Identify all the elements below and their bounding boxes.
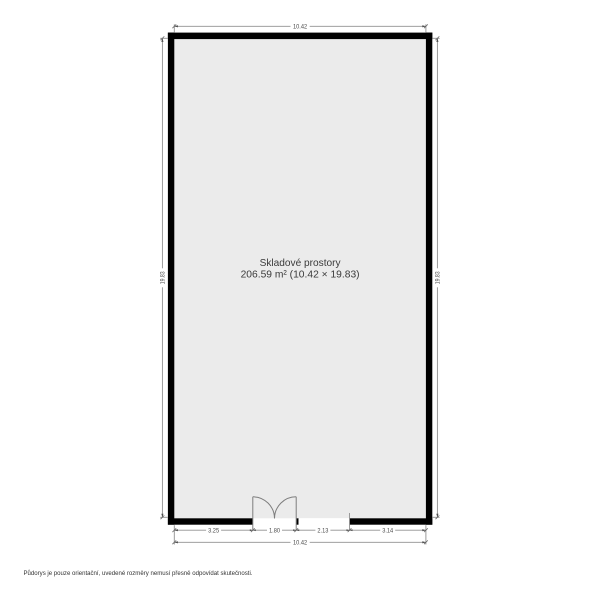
- svg-text:Skladové prostory: Skladové prostory: [260, 257, 342, 269]
- svg-text:3.25: 3.25: [208, 528, 219, 535]
- svg-text:19.83: 19.83: [160, 271, 167, 284]
- svg-text:3.14: 3.14: [382, 528, 393, 535]
- svg-text:1.80: 1.80: [269, 528, 280, 535]
- svg-text:10.42: 10.42: [293, 24, 308, 31]
- svg-text:Půdorys je pouze orientační, u: Půdorys je pouze orientační, uvedené roz…: [24, 569, 253, 577]
- svg-text:19.83: 19.83: [435, 271, 442, 284]
- svg-text:10.42: 10.42: [293, 540, 308, 547]
- svg-text:2.13: 2.13: [317, 528, 328, 535]
- svg-text:206.59 m² (10.42 × 19.83): 206.59 m² (10.42 × 19.83): [241, 269, 360, 281]
